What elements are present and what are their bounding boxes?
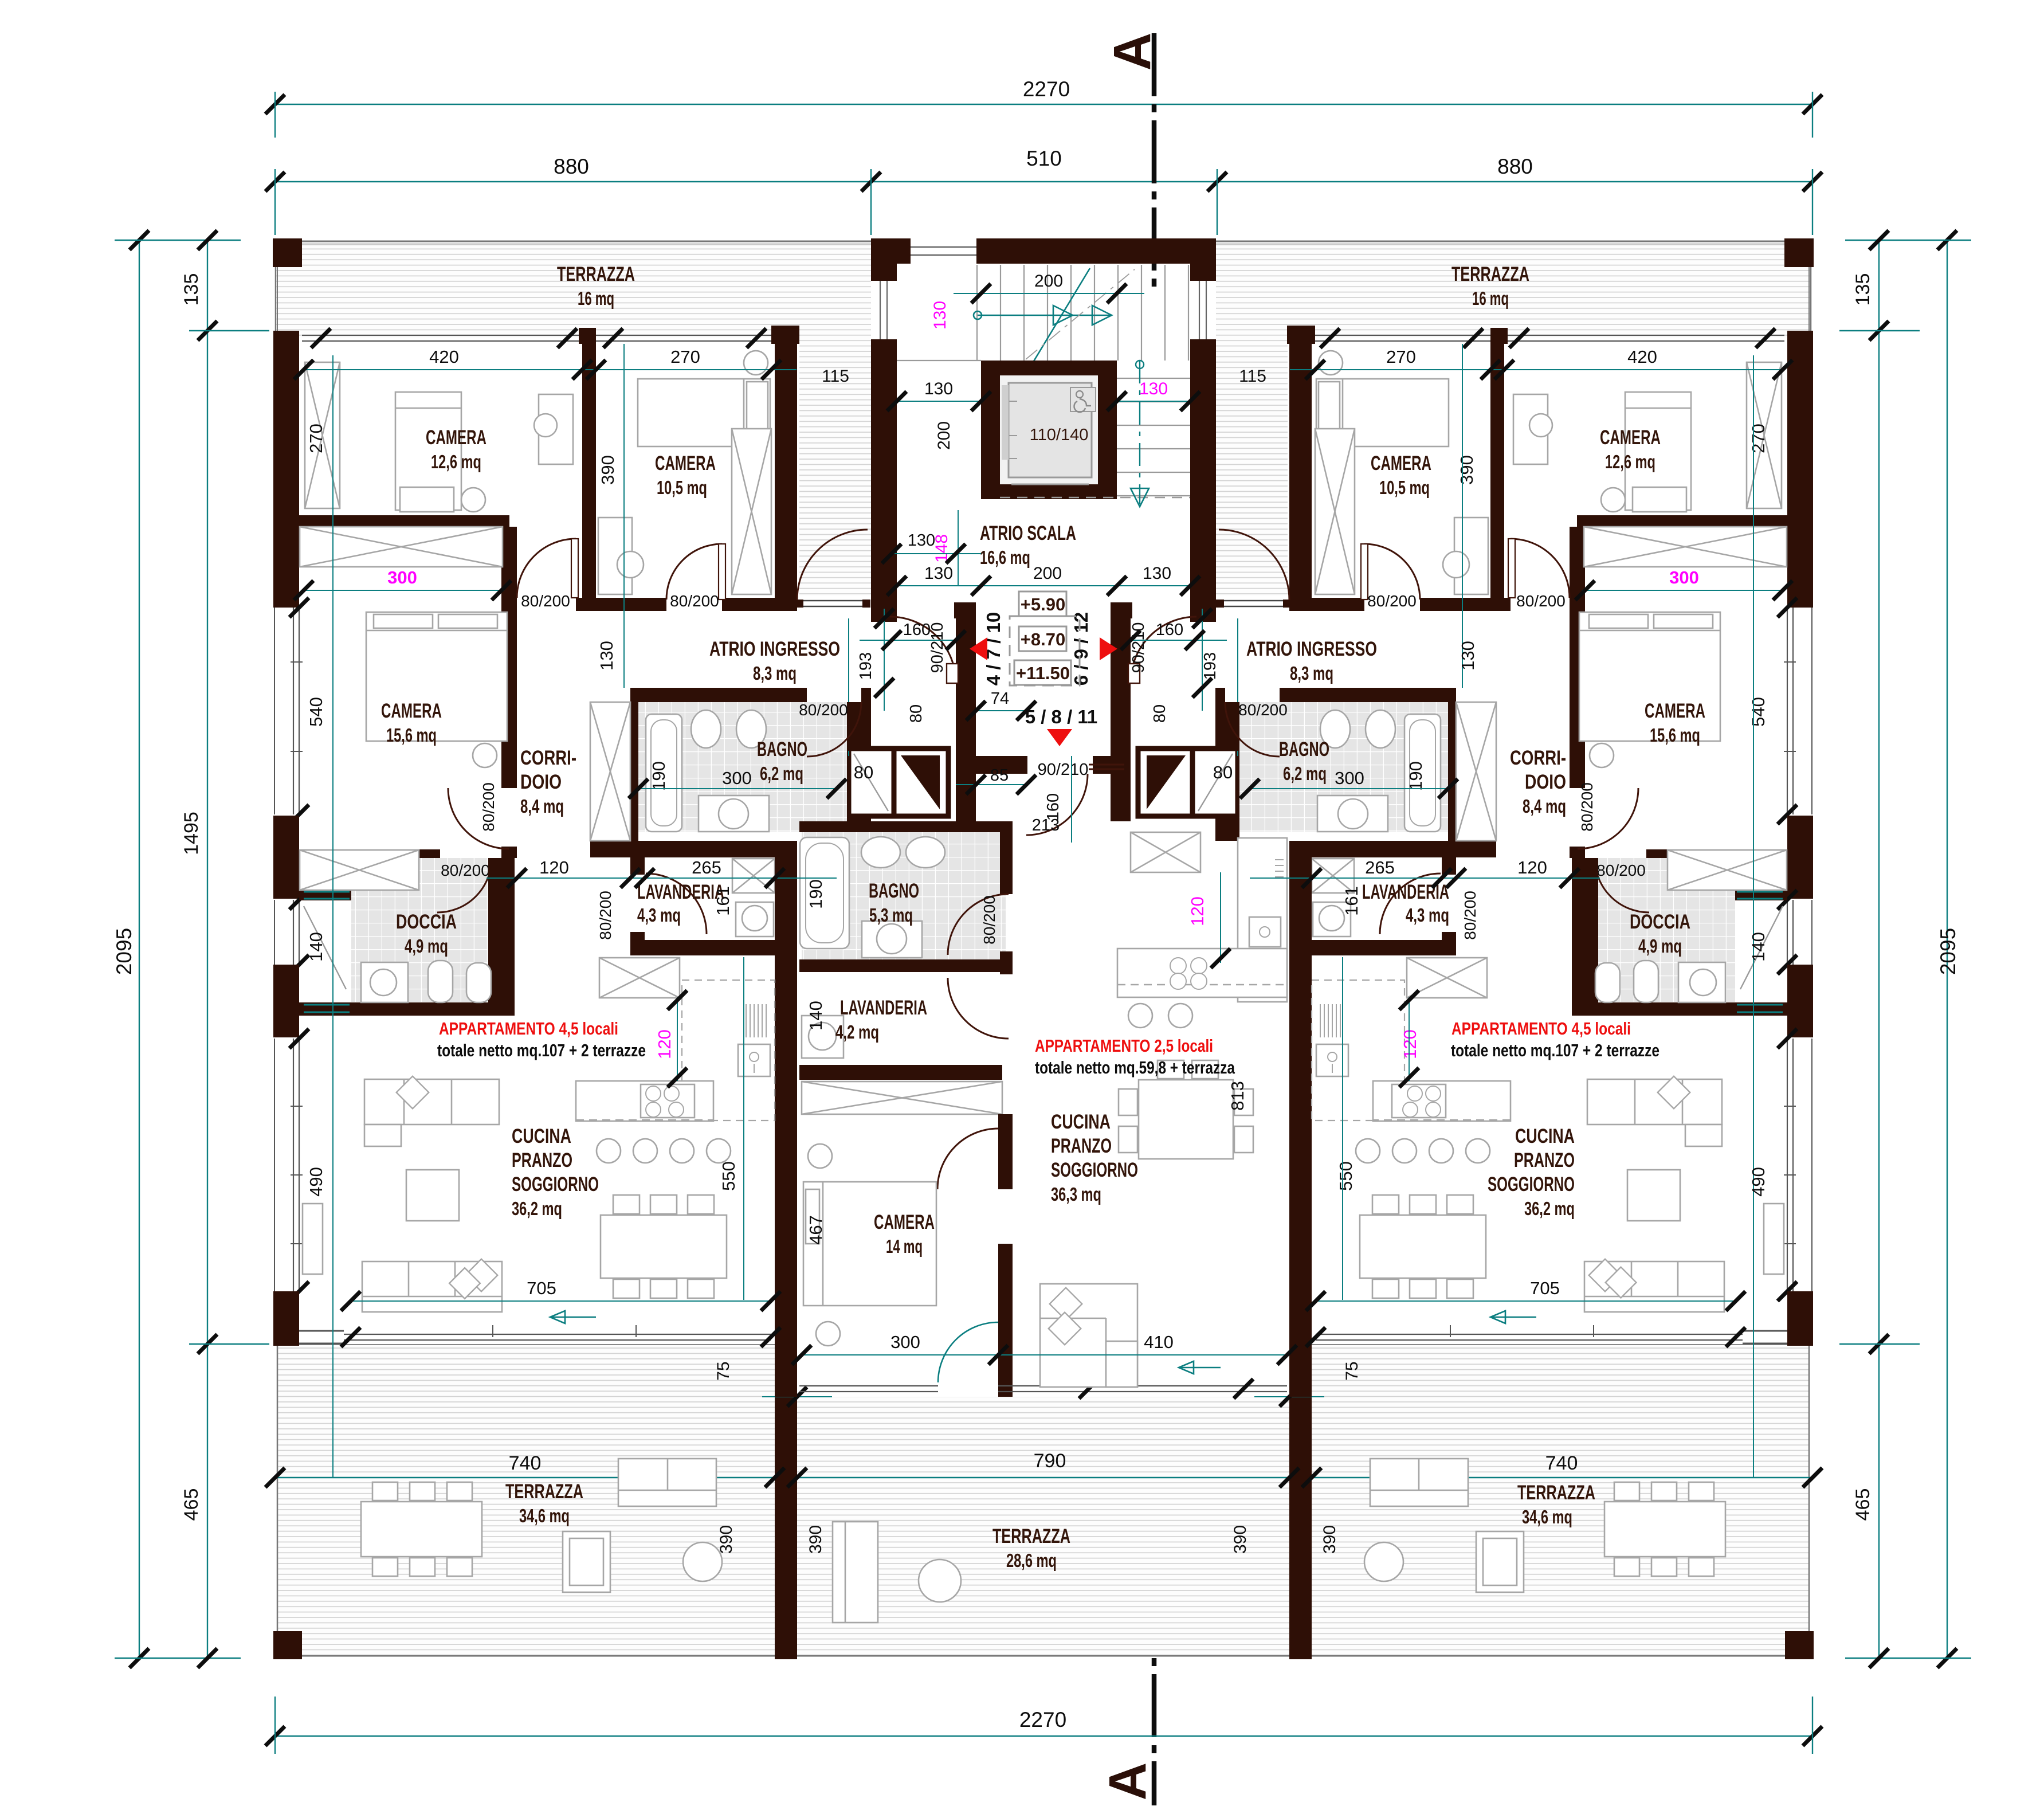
svg-text:390: 390: [1320, 1525, 1339, 1554]
svg-text:PRANZO: PRANZO: [1514, 1149, 1575, 1172]
svg-text:161: 161: [1341, 886, 1362, 916]
svg-text:10,5 mq: 10,5 mq: [657, 477, 707, 498]
svg-text:DOIO: DOIO: [1525, 771, 1566, 793]
svg-text:CAMERA: CAMERA: [1600, 426, 1661, 449]
svg-text:140: 140: [806, 1001, 826, 1031]
svg-text:130: 130: [924, 564, 953, 583]
svg-text:200: 200: [935, 421, 954, 450]
svg-text:200: 200: [1033, 564, 1062, 583]
svg-text:SOGGIORNO: SOGGIORNO: [1488, 1173, 1575, 1196]
svg-text:28,6 mq: 28,6 mq: [1006, 1550, 1057, 1571]
svg-text:200: 200: [1034, 272, 1063, 291]
svg-text:300: 300: [1669, 567, 1699, 587]
svg-text:totale netto mq.107 + 2 terraz: totale netto mq.107 + 2 terrazze: [437, 1040, 646, 1060]
svg-text:390: 390: [717, 1525, 736, 1554]
svg-text:705: 705: [527, 1278, 556, 1298]
svg-text:270: 270: [306, 424, 326, 453]
svg-text:300: 300: [1335, 768, 1364, 788]
svg-text:APPARTAMENTO 2,5 locali: APPARTAMENTO 2,5 locali: [1035, 1036, 1213, 1056]
svg-text:16,6 mq: 16,6 mq: [980, 547, 1030, 568]
svg-text:36,2 mq: 36,2 mq: [512, 1198, 562, 1219]
svg-text:80/200: 80/200: [1516, 592, 1566, 610]
svg-text:A: A: [1103, 33, 1162, 70]
svg-text:LAVANDERIA: LAVANDERIA: [637, 881, 724, 903]
svg-text:190: 190: [1406, 761, 1426, 791]
svg-text:15,6 mq: 15,6 mq: [386, 724, 437, 746]
svg-text:CAMERA: CAMERA: [874, 1211, 935, 1233]
svg-text:90/210: 90/210: [928, 622, 947, 673]
svg-text:120: 120: [1400, 1029, 1420, 1059]
svg-text:4,3 mq: 4,3 mq: [637, 904, 681, 926]
svg-text:420: 420: [1627, 347, 1657, 367]
svg-text:totale netto mq.107 + 2 terraz: totale netto mq.107 + 2 terrazze: [1451, 1040, 1659, 1060]
svg-text:APPARTAMENTO 4,5 locali: APPARTAMENTO 4,5 locali: [439, 1018, 618, 1039]
svg-text:34,6 mq: 34,6 mq: [519, 1505, 570, 1526]
svg-text:16 mq: 16 mq: [578, 288, 614, 309]
svg-text:80/200: 80/200: [980, 895, 998, 945]
svg-text:120: 120: [654, 1029, 674, 1059]
svg-text:4,2 mq: 4,2 mq: [835, 1021, 879, 1043]
svg-text:80/200: 80/200: [1596, 861, 1646, 879]
svg-text:CUCINA: CUCINA: [1051, 1111, 1111, 1133]
svg-text:75: 75: [1343, 1361, 1362, 1380]
svg-text:85: 85: [990, 766, 1009, 785]
svg-text:80/200: 80/200: [1578, 782, 1596, 832]
svg-text:80/200: 80/200: [799, 701, 848, 719]
svg-text:135: 135: [1852, 273, 1874, 306]
svg-text:490: 490: [1748, 1167, 1768, 1197]
svg-text:8,4 mq: 8,4 mq: [520, 796, 564, 817]
svg-text:1495: 1495: [181, 812, 202, 855]
svg-text:790: 790: [1034, 1450, 1066, 1472]
svg-text:A: A: [1098, 1762, 1157, 1800]
svg-text:740: 740: [509, 1452, 542, 1474]
svg-text:DOCCIA: DOCCIA: [1630, 911, 1690, 933]
svg-text:PRANZO: PRANZO: [1051, 1135, 1112, 1157]
svg-text:90/210: 90/210: [1038, 761, 1089, 779]
svg-text:705: 705: [1530, 1278, 1560, 1298]
svg-text:15,6 mq: 15,6 mq: [1650, 724, 1700, 746]
svg-text:8,3 mq: 8,3 mq: [753, 663, 797, 684]
svg-text:115: 115: [1239, 367, 1266, 386]
svg-text:190: 190: [649, 761, 669, 791]
svg-text:16 mq: 16 mq: [1472, 288, 1509, 309]
svg-text:CAMERA: CAMERA: [1371, 452, 1431, 475]
svg-text:12,6 mq: 12,6 mq: [431, 451, 481, 472]
svg-text:totale netto mq.59,8 + terrazz: totale netto mq.59,8 + terrazza: [1035, 1057, 1235, 1078]
svg-text:390: 390: [1231, 1525, 1250, 1554]
svg-text:TERRAZZA: TERRAZZA: [557, 263, 635, 285]
svg-text:ATRIO SCALA: ATRIO SCALA: [980, 522, 1076, 544]
svg-text:TERRAZZA: TERRAZZA: [1517, 1482, 1595, 1504]
svg-text:193: 193: [1201, 652, 1219, 680]
svg-text:120: 120: [1517, 857, 1547, 877]
svg-text:80/200: 80/200: [597, 891, 614, 940]
svg-text:465: 465: [1852, 1488, 1874, 1521]
svg-text:8,4 mq: 8,4 mq: [1523, 796, 1566, 817]
svg-text:550: 550: [1336, 1161, 1356, 1191]
svg-text:TERRAZZA: TERRAZZA: [505, 1480, 583, 1503]
svg-text:130: 130: [924, 379, 953, 398]
svg-text:130: 130: [597, 641, 617, 671]
svg-text:80/200: 80/200: [441, 861, 490, 879]
svg-text:74: 74: [991, 689, 1009, 708]
svg-text:BAGNO: BAGNO: [757, 738, 807, 761]
svg-text:4,9 mq: 4,9 mq: [1638, 935, 1682, 957]
svg-text:+11.50: +11.50: [1016, 663, 1070, 683]
svg-text:265: 265: [1365, 857, 1395, 877]
svg-text:300: 300: [890, 1332, 920, 1352]
svg-text:2095: 2095: [1936, 928, 1960, 975]
svg-text:130: 130: [908, 531, 935, 550]
svg-text:140: 140: [306, 932, 326, 962]
svg-text:6,2 mq: 6,2 mq: [1283, 763, 1327, 784]
svg-text:LAVANDERIA: LAVANDERIA: [840, 997, 927, 1019]
svg-text:120: 120: [539, 857, 569, 877]
svg-text:540: 540: [1748, 697, 1768, 727]
svg-text:36,2 mq: 36,2 mq: [1524, 1198, 1575, 1219]
svg-text:12,6 mq: 12,6 mq: [1605, 451, 1655, 472]
svg-text:270: 270: [1748, 424, 1768, 453]
svg-text:390: 390: [1457, 455, 1477, 485]
svg-text:265: 265: [692, 857, 721, 877]
svg-text:6 / 9 / 12: 6 / 9 / 12: [1070, 612, 1092, 685]
svg-text:5,3 mq: 5,3 mq: [869, 904, 913, 926]
svg-text:130: 130: [1143, 564, 1171, 583]
svg-text:115: 115: [822, 367, 849, 386]
svg-text:80/200: 80/200: [1367, 592, 1417, 610]
svg-text:130: 130: [1139, 379, 1168, 398]
svg-text:270: 270: [1386, 347, 1416, 367]
svg-text:TERRAZZA: TERRAZZA: [1451, 263, 1529, 285]
svg-text:BAGNO: BAGNO: [869, 880, 919, 902]
svg-text:880: 880: [554, 155, 589, 178]
svg-text:80/200: 80/200: [670, 592, 719, 610]
svg-text:CAMERA: CAMERA: [1645, 700, 1705, 722]
svg-text:420: 420: [429, 347, 459, 367]
svg-text:80/200: 80/200: [1238, 701, 1288, 719]
svg-text:BAGNO: BAGNO: [1279, 738, 1329, 761]
svg-text:SOGGIORNO: SOGGIORNO: [512, 1173, 599, 1196]
svg-text:2270: 2270: [1019, 1708, 1066, 1731]
svg-text:490: 490: [306, 1167, 326, 1197]
svg-text:6,2 mq: 6,2 mq: [760, 763, 803, 784]
svg-text:300: 300: [722, 768, 752, 788]
svg-text:740: 740: [1545, 1452, 1578, 1474]
svg-text:CUCINA: CUCINA: [512, 1125, 571, 1147]
svg-text:4,9 mq: 4,9 mq: [405, 935, 448, 957]
svg-text:+8.70: +8.70: [1021, 629, 1065, 649]
svg-text:CAMERA: CAMERA: [426, 426, 487, 449]
svg-text:ATRIO INGRESSO: ATRIO INGRESSO: [1246, 638, 1377, 660]
svg-text:161: 161: [713, 886, 733, 916]
svg-text:8,3 mq: 8,3 mq: [1290, 663, 1333, 684]
svg-text:880: 880: [1497, 155, 1533, 178]
svg-text:DOIO: DOIO: [520, 771, 562, 793]
svg-text:TERRAZZA: TERRAZZA: [992, 1525, 1070, 1547]
svg-text:34,6 mq: 34,6 mq: [1522, 1506, 1572, 1527]
svg-text:CORRI-: CORRI-: [1510, 747, 1566, 769]
svg-text:SOGGIORNO: SOGGIORNO: [1051, 1159, 1138, 1181]
svg-text:160: 160: [903, 621, 931, 639]
svg-text:80: 80: [854, 762, 873, 782]
svg-text:2270: 2270: [1023, 77, 1070, 101]
svg-text:CUCINA: CUCINA: [1515, 1125, 1575, 1147]
svg-text:160: 160: [1156, 621, 1183, 639]
svg-text:CORRI-: CORRI-: [520, 747, 576, 769]
svg-text:120: 120: [1187, 896, 1207, 926]
svg-text:+5.90: +5.90: [1021, 594, 1065, 614]
svg-text:CAMERA: CAMERA: [655, 452, 716, 475]
svg-text:193: 193: [857, 652, 875, 680]
svg-text:2095: 2095: [112, 928, 136, 975]
svg-text:80/200: 80/200: [521, 592, 570, 610]
svg-text:14 mq: 14 mq: [886, 1236, 923, 1257]
svg-text:APPARTAMENTO 4,5 locali: APPARTAMENTO 4,5 locali: [1451, 1018, 1631, 1039]
svg-text:80: 80: [1213, 762, 1233, 782]
svg-text:550: 550: [719, 1161, 739, 1191]
svg-text:110/140: 110/140: [1030, 426, 1089, 444]
svg-text:213: 213: [1032, 816, 1060, 835]
svg-text:300: 300: [387, 567, 417, 587]
svg-text:80: 80: [907, 704, 925, 723]
svg-text:130: 130: [1458, 641, 1478, 671]
svg-text:80: 80: [1151, 704, 1169, 723]
svg-text:80/200: 80/200: [480, 782, 497, 832]
svg-text:270: 270: [670, 347, 700, 367]
svg-text:5 / 8 / 11: 5 / 8 / 11: [1025, 706, 1098, 727]
svg-text:75: 75: [714, 1361, 733, 1380]
svg-text:813: 813: [1227, 1081, 1247, 1111]
svg-text:4,3 mq: 4,3 mq: [1406, 904, 1449, 926]
svg-text:510: 510: [1026, 147, 1062, 170]
svg-text:ATRIO INGRESSO: ATRIO INGRESSO: [709, 638, 840, 660]
svg-text:DOCCIA: DOCCIA: [396, 911, 457, 933]
svg-text:135: 135: [181, 273, 202, 306]
svg-text:390: 390: [598, 455, 618, 485]
svg-text:390: 390: [806, 1525, 825, 1554]
svg-text:36,3 mq: 36,3 mq: [1051, 1184, 1101, 1205]
svg-text:130: 130: [931, 301, 950, 330]
svg-text:540: 540: [306, 697, 326, 727]
svg-text:10,5 mq: 10,5 mq: [1379, 477, 1430, 498]
svg-text:190: 190: [806, 879, 826, 909]
svg-text:CAMERA: CAMERA: [381, 700, 442, 722]
svg-text:410: 410: [1144, 1332, 1174, 1352]
svg-text:465: 465: [181, 1488, 202, 1521]
svg-text:467: 467: [806, 1215, 826, 1245]
svg-text:80/200: 80/200: [1461, 891, 1479, 940]
svg-text:PRANZO: PRANZO: [512, 1149, 572, 1172]
svg-text:140: 140: [1748, 932, 1768, 962]
